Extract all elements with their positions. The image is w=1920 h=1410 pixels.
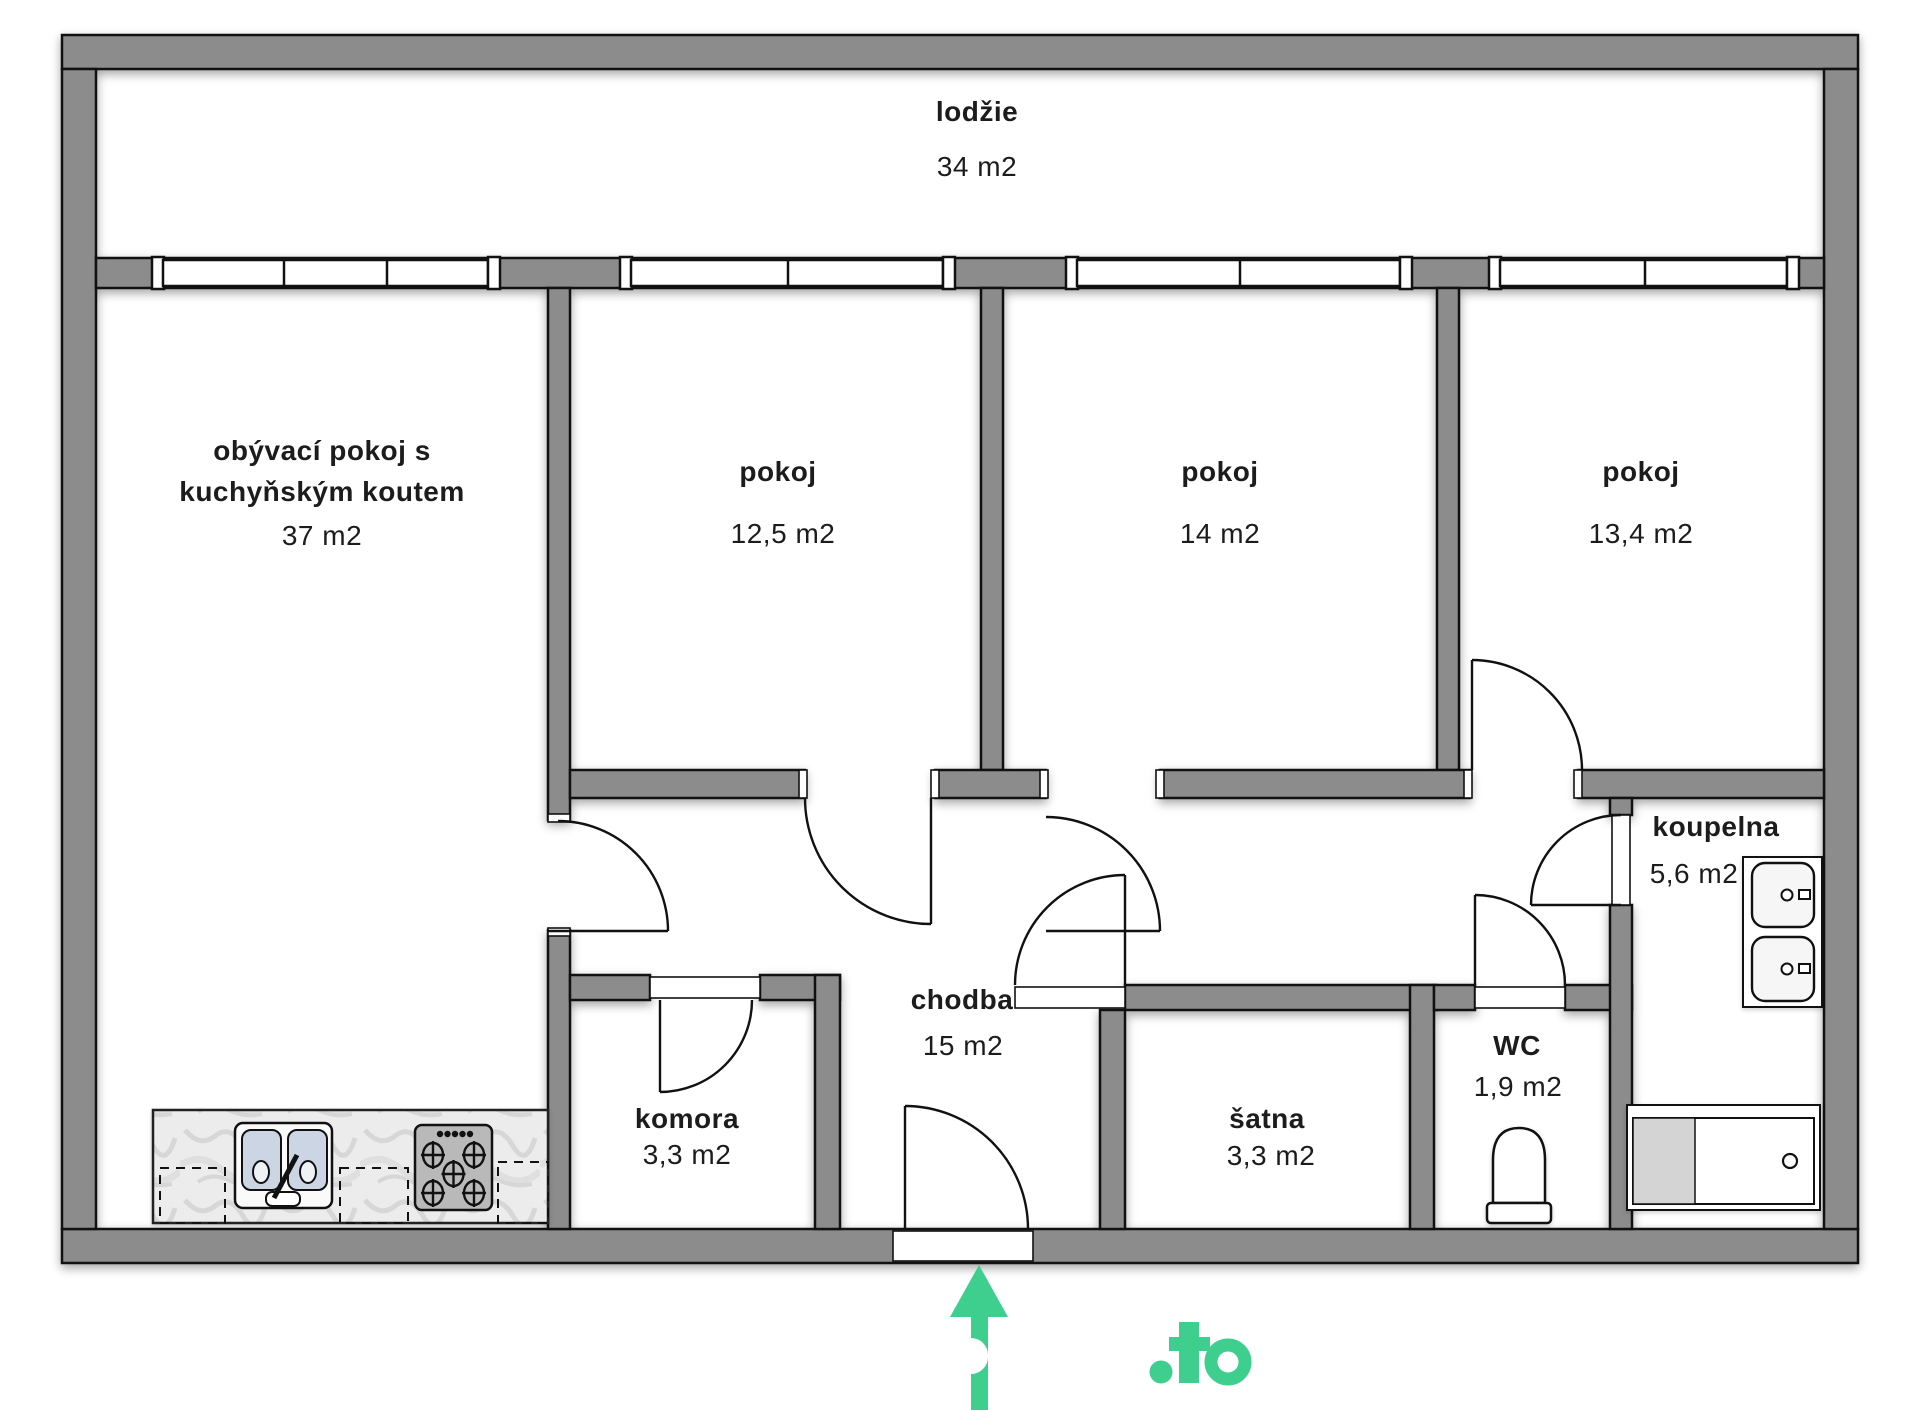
floorplan-svg (0, 0, 1920, 1410)
door-arc (1046, 817, 1160, 931)
door-arc (1531, 815, 1621, 905)
walls (62, 35, 1858, 1263)
room-label-pokoj-right-name: pokoj (1602, 456, 1679, 488)
room-label-pokoj-middle-name: pokoj (1181, 456, 1258, 488)
room-label-living-area: 37 m2 (282, 520, 362, 552)
room-label-lodzie-name: lodžie (936, 96, 1018, 128)
stove (415, 1125, 492, 1210)
window (620, 257, 955, 289)
room-label-satna-name: šatna (1229, 1103, 1305, 1135)
door-arc (660, 1000, 752, 1092)
room-label-pokoj-left-area: 12,5 m2 (731, 518, 836, 550)
window (152, 257, 500, 289)
door-arc (805, 798, 931, 924)
door-thresholds (548, 770, 1630, 1261)
door-arc (905, 1106, 1028, 1229)
kitchen-sink (235, 1123, 332, 1208)
door-arc (548, 821, 668, 931)
bathtub (1627, 1105, 1820, 1210)
floor-plan: lodžie 34 m2 obývací pokoj s kuchyňským … (0, 0, 1920, 1410)
room-label-chodba-name: chodba (911, 984, 1014, 1016)
room-label-pokoj-middle-area: 14 m2 (1180, 518, 1260, 550)
room-label-koupelna-area: 5,6 m2 (1650, 858, 1739, 890)
window (1066, 257, 1412, 289)
window (1489, 257, 1799, 289)
logo-to (1150, 1322, 1246, 1384)
room-label-wc-area: 1,9 m2 (1474, 1071, 1563, 1103)
door-arc (1475, 895, 1565, 985)
room-label-wc-name: WC (1493, 1030, 1541, 1062)
entrance-arrow-icon (944, 1265, 1008, 1410)
room-label-pokoj-left-name: pokoj (739, 456, 816, 488)
room-label-pokoj-right-area: 13,4 m2 (1589, 518, 1694, 550)
room-label-living-name-line2: kuchyňským koutem (179, 476, 465, 508)
room-label-lodzie-area: 34 m2 (937, 151, 1017, 183)
room-label-komora-name: komora (635, 1103, 739, 1135)
room-label-chodba-area: 15 m2 (923, 1030, 1003, 1062)
room-label-satna-area: 3,3 m2 (1227, 1140, 1316, 1172)
room-label-living-name-line1: obývací pokoj s (213, 435, 431, 467)
door-arc (1472, 660, 1582, 770)
toilet (1487, 1128, 1551, 1223)
room-label-koupelna-name: koupelna (1653, 811, 1780, 843)
room-label-komora-area: 3,3 m2 (643, 1139, 732, 1171)
washbasins (1743, 857, 1822, 1007)
